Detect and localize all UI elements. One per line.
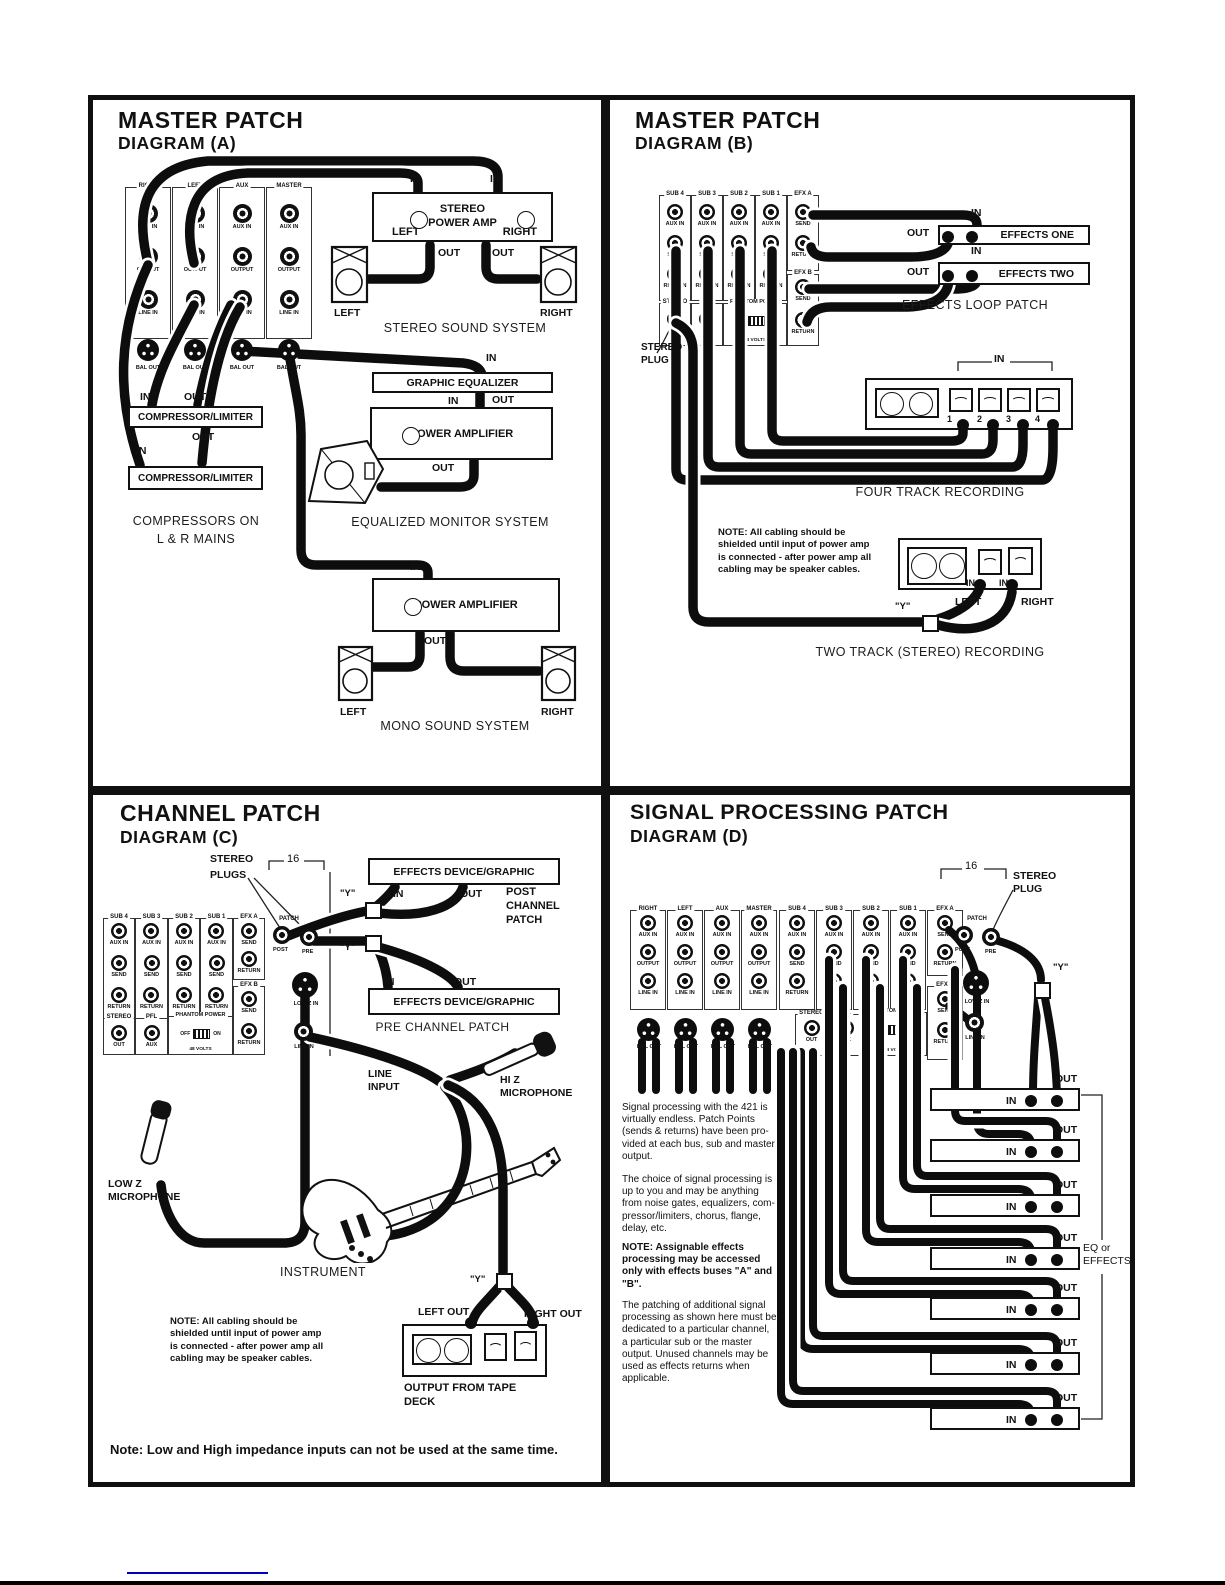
jack-label: LINE IN	[232, 310, 252, 316]
processor-box: IN	[930, 1297, 1080, 1320]
jack-label: OUTPUT	[711, 961, 734, 967]
tape-deck	[402, 1324, 547, 1377]
in-label: IN	[490, 173, 501, 185]
in-label: IN	[994, 353, 1005, 365]
panel-column-left: LEFT AUX IN OUTPUT LINE IN	[172, 187, 218, 339]
jack-icon	[789, 915, 805, 931]
jack-label: RETURN	[238, 1040, 261, 1046]
vu-meter-icon	[484, 1333, 507, 1361]
jack-label: AUX IN	[186, 224, 205, 230]
jack-label: RETURN	[786, 990, 809, 996]
phantom-switch-icon	[888, 1025, 905, 1035]
phantom-volts-label: 48 VOLTS	[724, 338, 786, 343]
power-amplifier-label: POWER AMPLIFIER	[410, 428, 513, 440]
effects-two-box: EFFECTS TWO	[938, 262, 1090, 285]
panel-column-efxb: EFX B SEND RETURN	[787, 274, 819, 346]
panel-column-sub1: SUB 1 AUX IN SEND RETURN	[890, 910, 926, 1010]
jack-label: AUX	[840, 1037, 852, 1043]
out-label: OUT	[492, 247, 514, 259]
column-header: SUB 1	[760, 191, 782, 197]
jack-label: AUX IN	[666, 221, 685, 227]
jack-icon	[176, 955, 192, 971]
jack-label: SEND	[731, 252, 746, 258]
jack-icon	[186, 204, 205, 223]
jack-icon	[208, 923, 224, 939]
phantom-switch-icon	[748, 316, 765, 326]
out-label: OUT	[492, 394, 514, 406]
in-label: IN	[410, 173, 421, 185]
jack-icon	[176, 987, 192, 1003]
title-a: MASTER PATCH	[118, 107, 303, 134]
jack-icon	[795, 235, 811, 251]
jack-label: AUX IN	[233, 224, 252, 230]
column-header: EFX B	[792, 270, 814, 276]
low-z-mic-label: LOW ZMICROPHONE	[108, 1178, 180, 1204]
eq-or-effects-label: EQ orEFFECTS	[1083, 1242, 1131, 1268]
in-label: IN	[971, 207, 982, 219]
jack-icon	[714, 944, 730, 960]
jack-icon	[965, 1013, 984, 1032]
jack-icon	[699, 266, 715, 282]
jack-label: AUX IN	[175, 940, 194, 946]
jack-icon	[139, 247, 158, 266]
jack-icon	[982, 928, 1000, 946]
column-header: EFX A	[238, 914, 259, 920]
jack-icon	[789, 973, 805, 989]
xlr-icon	[278, 339, 300, 361]
column-header: PFL	[699, 299, 714, 305]
patch-dot	[1025, 1414, 1037, 1426]
jack-label: SEND	[763, 252, 778, 258]
jack-icon	[667, 204, 683, 220]
column-header: EFX A	[934, 906, 955, 912]
patch-header: PATCH	[279, 916, 299, 922]
jack-label: AUX IN	[280, 224, 299, 230]
jack-label: SEND	[176, 972, 191, 978]
jack-icon	[233, 290, 252, 309]
xlr-icon	[137, 339, 159, 361]
y-adapter-icon	[1034, 982, 1051, 999]
jack-icon	[714, 915, 730, 931]
jack-icon	[699, 235, 715, 251]
jack-icon	[186, 247, 205, 266]
track-number: 2	[977, 414, 982, 424]
deck-right-label: RIGHT	[1021, 596, 1054, 609]
jack-label: AUX IN	[730, 221, 749, 227]
jack-label: OUTPUT	[748, 961, 771, 967]
title-b: MASTER PATCH	[635, 107, 820, 134]
track-number: 1	[947, 414, 952, 424]
jack-icon	[640, 944, 656, 960]
low-z-microphone-icon	[126, 1098, 186, 1186]
jack-icon	[176, 923, 192, 939]
jack-icon	[826, 944, 842, 960]
phantom-power-section: PHANTOM POWER OFFON 48 VOLTS	[168, 1016, 233, 1055]
compressor-limiter-box: COMPRESSOR/LIMITER	[128, 406, 263, 428]
column-header: MASTER	[274, 183, 303, 189]
panel-column-sub2: SUB 2 AUX IN SEND RETURN	[853, 910, 889, 1010]
paragraph-1: Signal processing with the 421 isvirtual…	[622, 1102, 798, 1163]
in-label: IN	[1006, 1414, 1017, 1426]
jack-icon	[789, 944, 805, 960]
panel-column-master: MASTER AUX IN OUTPUT LINE IN	[266, 187, 312, 339]
column-header: SUB 2	[173, 914, 195, 920]
y-adapter-label: "Y"	[470, 1274, 485, 1286]
jack-icon	[209, 955, 225, 971]
panel-column-pfl: PFL AUX	[829, 1014, 862, 1056]
column-header: RIGHT	[137, 183, 160, 189]
stereo-plugs-callout: STEREOPLUGS	[210, 852, 253, 884]
phantom-power-section: PHANTOM POWER OFFON 48 VOLTS	[863, 1012, 927, 1056]
phantom-header: PHANTOM POWER	[868, 1008, 922, 1014]
paragraph-2: The choice of signal processing isup to …	[622, 1174, 798, 1235]
panel-column-efxb: EFX B SEND RETURN	[927, 986, 963, 1060]
jack-icon	[111, 955, 127, 971]
jack-icon	[751, 973, 767, 989]
speaker-right-label: RIGHT	[540, 307, 573, 320]
xlr-label: BAL OUT	[703, 1044, 743, 1050]
quadrant-master-patch-a: MASTER PATCH DIAGRAM (A) RIGHT AUX IN OU…	[88, 95, 605, 790]
knob-icon	[402, 427, 420, 445]
column-header: STEREO	[661, 299, 690, 305]
jack-label: RETURN	[108, 1004, 131, 1010]
xlr-label: BAL OUT	[175, 365, 215, 371]
deck-left-label: LEFT	[955, 596, 981, 609]
in-label: IN	[384, 976, 395, 988]
panel-column-stereo-out: STEREO OUT	[659, 303, 691, 346]
panel-column-aux: AUX AUX IN OUTPUT LINE IN	[219, 187, 265, 339]
xlr-label: BAL OUT	[629, 1044, 669, 1050]
stereo-system-caption: STEREO SOUND SYSTEM	[345, 321, 585, 335]
power-amplifier-label: POWER AMPLIFIER	[414, 599, 517, 611]
panel-column-right: RIGHT AUX IN OUTPUT LINE IN	[630, 910, 666, 1010]
line-in-label: LINE IN	[957, 1035, 993, 1041]
panel-column-sub4: SUB 4 AUX IN SEND RETURN	[103, 918, 135, 1028]
out-label: OUT	[1055, 1337, 1077, 1349]
jack-icon	[241, 951, 257, 967]
jack-label: SEND	[241, 1008, 256, 1014]
jack-icon	[640, 915, 656, 931]
out-label: OUT	[454, 976, 476, 988]
xlr-label: BAL OUT	[222, 365, 262, 371]
jack-label: SEND	[144, 972, 159, 978]
xlr-icon	[711, 1018, 734, 1041]
out-label: OUT	[907, 227, 929, 239]
effects-loop-caption: EFFECTS LOOP PATCH	[885, 298, 1065, 312]
jack-icon	[144, 1025, 160, 1041]
xlr-label: BAL OUT	[666, 1044, 706, 1050]
monitor-wedge-icon	[303, 435, 391, 509]
jack-label: LINE IN	[638, 990, 658, 996]
jack-icon	[677, 915, 693, 931]
jack-label: RETURN	[696, 283, 719, 289]
line-input-label: LINEINPUT	[368, 1068, 400, 1094]
in-label: IN	[140, 391, 151, 403]
paragraph-note: NOTE: Assignable effectsprocessing may b…	[622, 1242, 798, 1291]
jack-icon	[863, 944, 879, 960]
patch-dot	[1025, 1359, 1037, 1371]
two-track-recorder: IN IN	[898, 538, 1042, 590]
jack-icon	[280, 247, 299, 266]
two-track-caption: TWO TRACK (STEREO) RECORDING	[785, 645, 1075, 659]
phantom-power-section: PHANTOM POWER OFFON 48 VOLTS	[723, 303, 787, 346]
jack-label: SEND	[241, 940, 256, 946]
jack-icon	[111, 1025, 127, 1041]
column-header: SUB 4	[108, 914, 130, 920]
jack-label: SEND	[795, 296, 810, 302]
processor-box: IN	[930, 1139, 1080, 1162]
jack-icon	[795, 312, 811, 328]
column-header: EFX B	[934, 982, 956, 988]
phantom-header: PHANTOM POWER	[173, 1012, 227, 1018]
jack-icon	[233, 247, 252, 266]
panel-column-left: LEFT AUX IN OUTPUT LINE IN	[667, 910, 703, 1010]
jack-label: SEND	[699, 252, 714, 258]
jack-icon	[280, 204, 299, 223]
xlr-icon	[674, 1018, 697, 1041]
title-c: CHANNEL PATCH	[120, 800, 321, 827]
hi-z-mic-label: HI ZMICROPHONE	[500, 1074, 572, 1100]
stereo-plug-callout: STEREOPLUG	[1013, 870, 1056, 896]
in-label: IN	[971, 245, 982, 257]
vu-meter-icon	[1008, 547, 1033, 575]
panel-column-pfl: PFL AUX	[135, 1018, 168, 1055]
xlr-icon	[231, 339, 253, 361]
out-label: OUT	[1055, 1392, 1077, 1404]
jack-icon	[699, 204, 715, 220]
reel-box	[412, 1334, 472, 1365]
jack-label: AUX	[146, 1042, 158, 1048]
jack-icon	[863, 915, 879, 931]
patch-dot	[1006, 579, 1018, 591]
jack-label: AUX IN	[788, 932, 807, 938]
column-header: SUB 4	[786, 906, 808, 912]
reel-box	[875, 388, 939, 418]
post-label: POST	[273, 947, 288, 953]
jack-label: AUX IN	[713, 932, 732, 938]
quadrant-channel-patch-c: CHANNEL PATCH DIAGRAM (C) STEREOPLUGS 16…	[88, 790, 605, 1487]
lowz-in-label: LOW Z IN	[284, 1001, 328, 1007]
amp-right-label: RIGHT	[503, 226, 537, 238]
manual-page: { "io": {"in": "IN", "out": "OUT"}, "not…	[0, 0, 1225, 1585]
column-header: RIGHT	[637, 906, 660, 912]
jack-label: OUTPUT	[278, 267, 301, 273]
jack-icon	[900, 915, 916, 931]
patch-dot	[1017, 419, 1029, 431]
reel-icon	[880, 392, 904, 416]
y-adapter-label: "Y"	[340, 888, 355, 900]
xlr-label: BAL OUT	[269, 365, 309, 371]
eq-monitor-caption: EQUALIZED MONITOR SYSTEM	[320, 515, 580, 529]
out-label: OUT	[460, 888, 482, 900]
subtitle-b: DIAGRAM (B)	[635, 133, 753, 154]
post-channel-patch-label: POSTCHANNELPATCH	[506, 886, 560, 927]
column-header: SUB 1	[206, 914, 228, 920]
out-label: OUT	[1055, 1282, 1077, 1294]
left-out-label: LEFT OUT	[418, 1306, 469, 1319]
patch-dot	[527, 1317, 539, 1329]
y-adapter-icon	[922, 615, 939, 632]
jack-label: LINE IN	[712, 990, 732, 996]
jack-label: OUT	[669, 328, 681, 334]
y-adapter-label: "Y"	[340, 942, 355, 954]
out-label: OUT	[907, 266, 929, 278]
panel-column-sub2: SUB 2 AUX IN SEND RETURN	[723, 195, 755, 301]
subtitle-d: DIAGRAM (D)	[630, 826, 748, 847]
jack-label: RETURN	[664, 283, 687, 289]
jack-label: RETURN	[823, 990, 846, 996]
out-label: OUT	[192, 431, 214, 443]
patch-dot	[1047, 419, 1059, 431]
jack-label: LINE IN	[675, 990, 695, 996]
jack-icon	[731, 266, 747, 282]
panel-column-aux: AUX AUX IN OUTPUT LINE IN	[704, 910, 740, 1010]
phantom-on-label: ON	[768, 318, 776, 324]
track-number: 3	[1006, 414, 1011, 424]
jack-icon	[667, 311, 683, 327]
jack-icon	[294, 1022, 313, 1041]
out-label: OUT	[1055, 1232, 1077, 1244]
jack-label: SEND	[900, 961, 915, 967]
panel-column-stereo-out: STEREO OUT	[103, 1018, 135, 1055]
phantom-volts-label: 48 VOLTS	[864, 1048, 926, 1053]
jack-icon	[273, 926, 291, 944]
jack-icon	[699, 311, 715, 327]
jack-label: SEND	[937, 1008, 952, 1014]
jack-icon	[900, 973, 916, 989]
jack-label: OUTPUT	[674, 961, 697, 967]
jack-label: AUX IN	[639, 932, 658, 938]
jack-icon	[804, 1020, 820, 1036]
patch-dot	[1051, 1095, 1063, 1107]
out-label: OUT	[1055, 1179, 1077, 1191]
jack-label: AUX IN	[110, 940, 129, 946]
effects-device-box-pre: EFFECTS DEVICE/GRAPHIC	[368, 988, 560, 1015]
subtitle-c: DIAGRAM (C)	[120, 827, 238, 848]
jack-icon	[731, 204, 747, 220]
jack-icon	[667, 266, 683, 282]
compressors-caption-line1: COMPRESSORS ON	[133, 514, 259, 528]
channel-16-label: 16	[287, 853, 299, 865]
jack-label: RETURN	[760, 283, 783, 289]
column-header: AUX	[234, 183, 251, 189]
jack-icon	[763, 235, 779, 251]
in-label: IN	[1006, 1304, 1017, 1316]
jack-icon	[714, 973, 730, 989]
jack-label: LINE IN	[185, 310, 205, 316]
phantom-switch-icon	[193, 1029, 210, 1039]
panel-column-sub4: SUB 4 AUX IN SEND RETURN	[779, 910, 815, 1010]
compressor-limiter-box: COMPRESSOR/LIMITER	[128, 466, 263, 490]
jack-label: AUX IN	[139, 224, 158, 230]
jack-icon	[143, 987, 159, 1003]
jack-label: SEND	[667, 252, 682, 258]
jack-label: AUX IN	[899, 932, 918, 938]
speaker-icon	[337, 645, 374, 702]
instrument-guitar-icon	[260, 1118, 570, 1263]
track-number: 4	[1035, 414, 1040, 424]
footer-blue-line	[127, 1572, 268, 1574]
speaker-icon	[539, 245, 578, 304]
jack-label: OUTPUT	[231, 267, 254, 273]
lowz-in-label: LOW Z IN	[955, 999, 999, 1005]
xlr-icon	[748, 1018, 771, 1041]
panel-column-sub3: SUB 3 AUX IN SEND RETURN	[691, 195, 723, 301]
quadrant-master-patch-b: MASTER PATCH DIAGRAM (B) SUB 4 AUX IN SE…	[605, 95, 1135, 790]
column-header: STEREO	[797, 1010, 826, 1016]
jack-icon	[233, 204, 252, 223]
title-d: SIGNAL PROCESSING PATCH	[630, 800, 949, 825]
channel-16-label: 16	[965, 860, 977, 872]
jack-label: RETURN	[860, 990, 883, 996]
column-header: EFX A	[792, 191, 813, 197]
jack-label: AUX IN	[862, 932, 881, 938]
jack-icon	[241, 991, 257, 1007]
patch-dot	[1051, 1254, 1063, 1266]
patch-dot	[1025, 1254, 1037, 1266]
jack-icon	[795, 279, 811, 295]
column-header: LEFT	[676, 906, 695, 912]
jack-icon	[143, 923, 159, 939]
column-header: EFX B	[238, 982, 260, 988]
in-label: IN	[1006, 1146, 1017, 1158]
patch-dot	[1051, 1146, 1063, 1158]
column-header: SUB 3	[141, 914, 163, 920]
patch-dot	[987, 419, 999, 431]
knob-icon	[410, 211, 428, 229]
jack-label: OUTPUT	[637, 961, 660, 967]
vu-meter-icon	[1007, 388, 1031, 412]
jack-icon	[111, 923, 127, 939]
processor-box: IN	[930, 1194, 1080, 1217]
jack-label: SEND	[111, 972, 126, 978]
patch-dot	[942, 231, 954, 243]
patch-dot	[966, 270, 978, 282]
jack-label: RETURN	[792, 329, 815, 335]
in-label: IN	[1006, 1201, 1017, 1213]
panel-column-sub3: SUB 3 AUX IN SEND RETURN	[135, 918, 168, 1028]
jack-icon	[826, 915, 842, 931]
jack-label: RETURN	[934, 1039, 957, 1045]
jack-icon	[731, 235, 747, 251]
speaker-left-label: LEFT	[340, 706, 366, 719]
cabling-note: NOTE: All cabling should be shielded unt…	[170, 1316, 335, 1365]
xlr-icon	[963, 970, 989, 996]
jack-label: AUX IN	[142, 940, 161, 946]
jack-label: AUX IN	[698, 221, 717, 227]
mono-system-caption: MONO SOUND SYSTEM	[335, 719, 575, 733]
jack-label: RETURN	[728, 283, 751, 289]
pre-label: PRE	[302, 949, 313, 955]
deck-caption: OUTPUT FROM TAPEDECK	[404, 1382, 516, 1410]
out-label: OUT	[1055, 1124, 1077, 1136]
amp-name-line1: STEREO	[440, 203, 485, 215]
in-label: IN	[1006, 1359, 1017, 1371]
knob-icon	[517, 211, 535, 229]
patch-dot	[974, 579, 986, 591]
reel-icon	[911, 553, 937, 579]
jack-icon	[208, 987, 224, 1003]
page-bottom-edge	[0, 1581, 1225, 1585]
column-header: SUB 3	[823, 906, 845, 912]
jack-label: RETURN	[140, 1004, 163, 1010]
reel-icon	[909, 392, 933, 416]
speaker-left-label: LEFT	[334, 307, 360, 320]
patch-dot	[1025, 1095, 1037, 1107]
patch-dot	[1025, 1146, 1037, 1158]
xlr-label: BAL OUT	[128, 365, 168, 371]
jack-label: RETURN	[205, 1004, 228, 1010]
